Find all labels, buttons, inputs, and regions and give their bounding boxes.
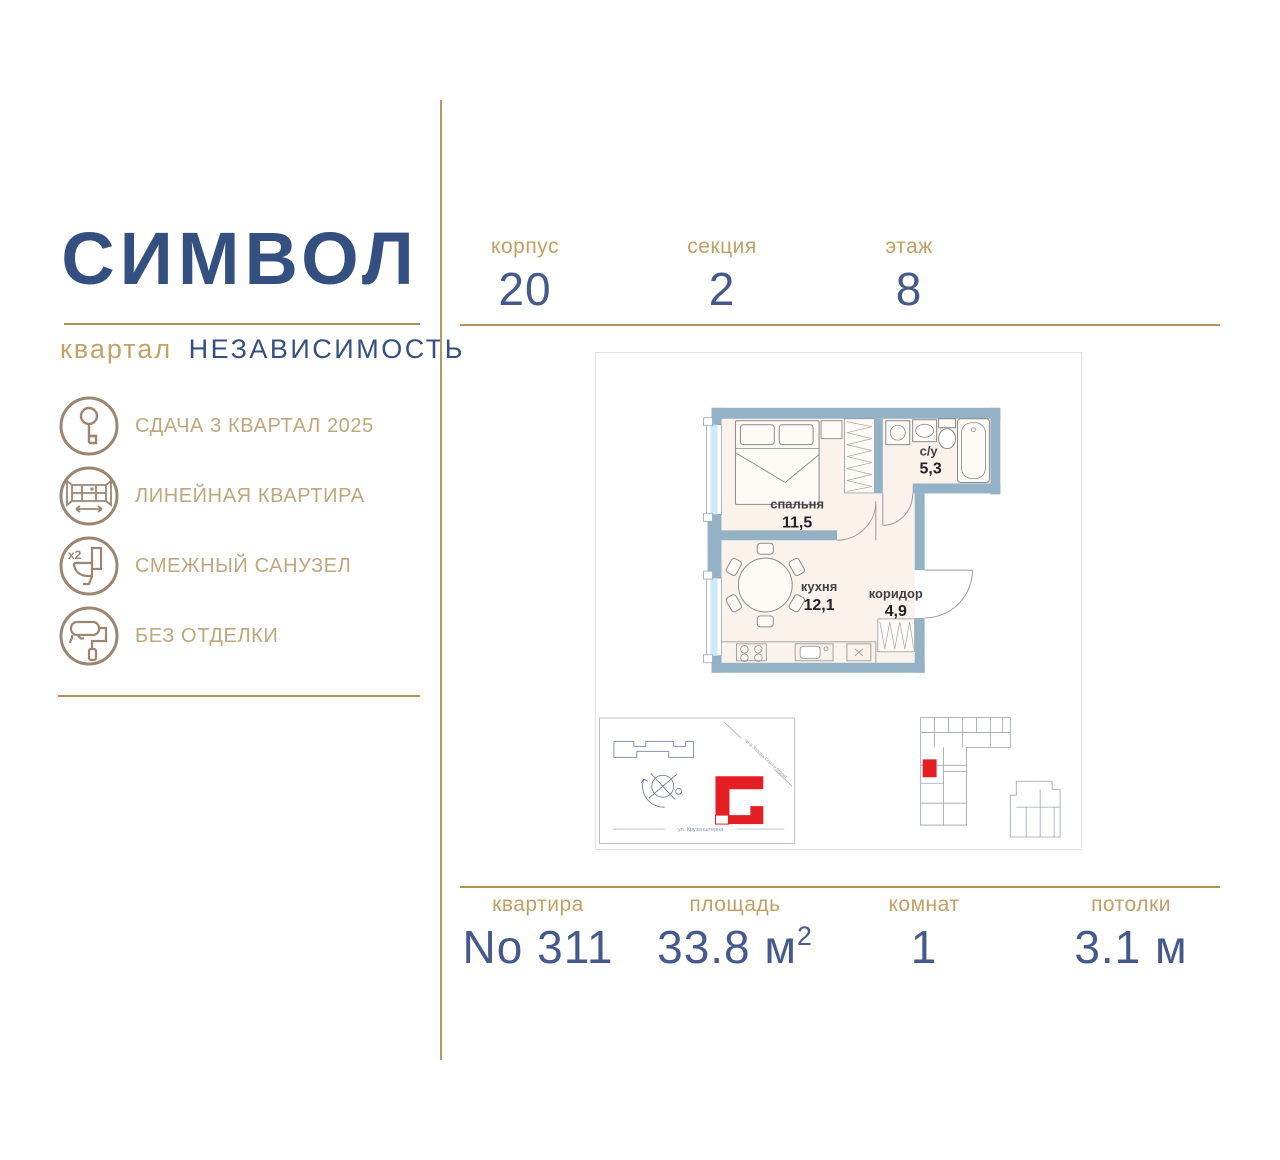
info-area: площадь 33.8 м2 bbox=[655, 894, 815, 970]
paint-roller-icon bbox=[58, 605, 120, 667]
feature-bathroom: х2 СМЕЖНЫЙ САНУЗЕЛ bbox=[58, 535, 428, 597]
info-label: секция bbox=[652, 236, 792, 257]
district-title: квартал НЕЗАВИСИМОСТЬ bbox=[60, 334, 420, 365]
ceiling-value: 3.1 м bbox=[1074, 921, 1187, 973]
room-name-corridor: коридор bbox=[869, 586, 923, 601]
room-area-corridor: 4,9 bbox=[885, 603, 907, 620]
bottom-divider bbox=[460, 886, 1220, 888]
feature-layout: ЛИНЕЙНАЯ КВАРТИРА bbox=[58, 465, 428, 527]
info-label: потолки bbox=[1051, 894, 1211, 915]
room-name-bedroom: спальня bbox=[770, 496, 824, 511]
district-name: НЕЗАВИСИМОСТЬ bbox=[189, 334, 465, 364]
toilet-icon: х2 bbox=[58, 535, 120, 597]
feature-label: СДАЧА 3 КВАРТАЛ 2025 bbox=[135, 415, 374, 438]
rooms-value: 1 bbox=[911, 921, 938, 973]
feature-label: ЛИНЕЙНАЯ КВАРТИРА bbox=[135, 485, 365, 508]
floor-plan: спальня 11,5 с/у 5,3 кухня 12,1 коридор … bbox=[596, 353, 1081, 849]
info-label: комнат bbox=[844, 894, 1004, 915]
x2-badge: х2 bbox=[68, 548, 82, 562]
info-apartment: квартира No 311 bbox=[458, 894, 618, 970]
street-label-bottom: ул. Крузенштерна bbox=[678, 827, 724, 833]
info-label: квартира bbox=[458, 894, 618, 915]
wardrobe bbox=[844, 419, 874, 493]
value-sup: 2 bbox=[797, 921, 813, 951]
district-label: квартал bbox=[60, 334, 172, 364]
vertical-divider bbox=[440, 100, 442, 1060]
room-name-kitchen: кухня bbox=[801, 579, 837, 594]
panoramic-window-icon bbox=[58, 465, 120, 527]
info-value: 3.1 м bbox=[1051, 924, 1211, 970]
features-divider bbox=[58, 695, 420, 697]
info-label: корпус bbox=[455, 236, 595, 257]
area-value: 33.8 м bbox=[657, 921, 797, 973]
info-rooms: комнат 1 bbox=[844, 894, 1004, 970]
highlighted-unit bbox=[923, 759, 937, 777]
feature-label: СМЕЖНЫЙ САНУЗЕЛ bbox=[135, 555, 351, 578]
info-label: площадь bbox=[655, 894, 815, 915]
room-area-kitchen: 12,1 bbox=[804, 597, 835, 614]
bed bbox=[735, 421, 819, 505]
logo-underline bbox=[64, 323, 420, 325]
dresser bbox=[821, 421, 842, 439]
brand-logo: СИМВОЛ bbox=[60, 222, 420, 296]
top-divider bbox=[460, 324, 1220, 326]
feature-completion: СДАЧА 3 КВАРТАЛ 2025 bbox=[58, 395, 428, 457]
info-building: корпус 20 bbox=[455, 236, 595, 312]
info-value: No 311 bbox=[458, 924, 618, 970]
info-floor: этаж 8 bbox=[839, 236, 979, 312]
info-value: 2 bbox=[652, 266, 792, 312]
info-value: 8 bbox=[839, 266, 979, 312]
corridor-closet bbox=[878, 619, 915, 652]
feature-list: СДАЧА 3 КВАРТАЛ 2025 ЛИНЕЙНАЯ КВАРТИРА х… bbox=[58, 395, 428, 675]
room-area-bathroom: 5,3 bbox=[920, 461, 942, 478]
info-value: 33.8 м2 bbox=[655, 924, 815, 970]
site-map: пр-д Завода Серп и Молот ул. Крузенштерн… bbox=[599, 718, 794, 843]
floor-plan-panel: спальня 11,5 с/у 5,3 кухня 12,1 коридор … bbox=[595, 352, 1082, 850]
info-section: секция 2 bbox=[652, 236, 792, 312]
floor-schematic bbox=[921, 718, 1060, 838]
info-value: 20 bbox=[455, 266, 595, 312]
room-name-bathroom: с/у bbox=[920, 444, 939, 459]
apartment-number: No 311 bbox=[463, 921, 614, 973]
room-area-bedroom: 11,5 bbox=[782, 514, 812, 531]
feature-label: БЕЗ ОТДЕЛКИ bbox=[135, 625, 278, 648]
info-ceiling: потолки 3.1 м bbox=[1051, 894, 1211, 970]
key-icon bbox=[58, 395, 120, 457]
feature-finish: БЕЗ ОТДЕЛКИ bbox=[58, 605, 428, 667]
info-value: 1 bbox=[844, 924, 1004, 970]
info-label: этаж bbox=[839, 236, 979, 257]
